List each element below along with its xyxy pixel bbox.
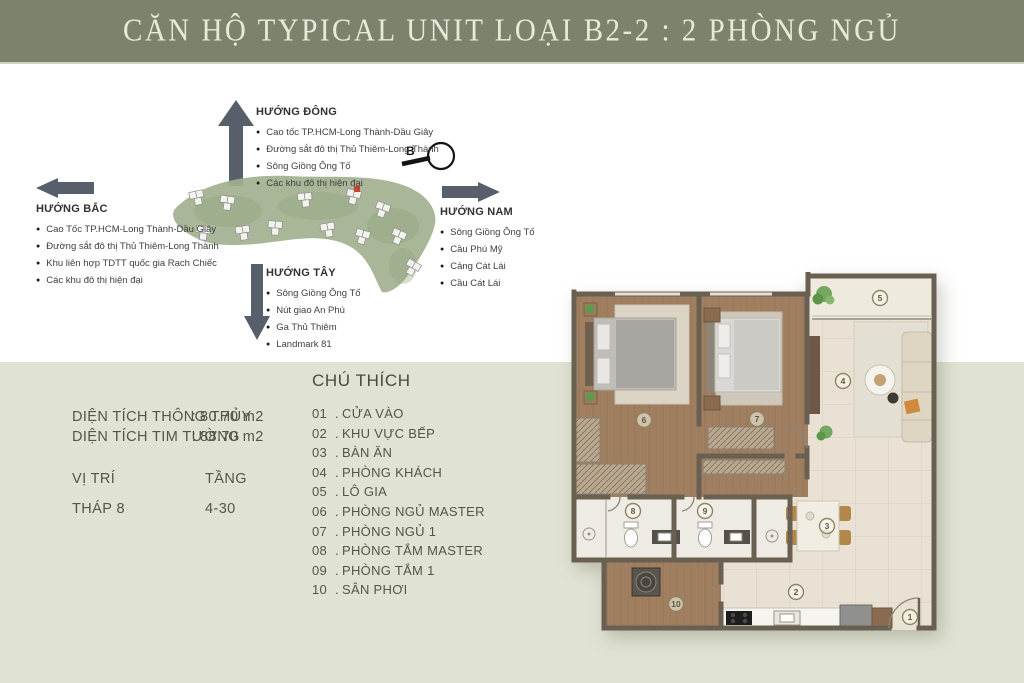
net-area-row: DIỆN TÍCH THÔNG THỦY:80.70 m2: [72, 409, 264, 425]
direction-east-block: HƯỚNG ĐÔNG ●Cao tốc TP.HCM-Long Thành-Dầ…: [256, 106, 439, 193]
bullet-icon: ●: [36, 260, 40, 267]
svg-text:7: 7: [755, 414, 760, 424]
bullet-icon: ●: [266, 307, 270, 314]
svg-text:5: 5: [878, 293, 883, 303]
position-value: THÁP 8: [72, 501, 125, 517]
refrigerator: [840, 605, 872, 628]
floor-plan: 1 2 3 4 5 6 7 8 9 10: [558, 272, 958, 647]
marker-bathroom1: 9: [698, 504, 713, 519]
hall-cabinet: [703, 460, 785, 474]
list-item: ●Ga Thủ Thiêm: [266, 320, 361, 337]
bathroom-floor: [572, 497, 790, 560]
bedroom1-wardrobe: [708, 427, 774, 449]
kitchen-counter: [721, 608, 840, 628]
svg-text:1: 1: [908, 612, 913, 622]
bullet-icon: ●: [266, 290, 270, 297]
legend-item: 04.PHÒNG KHÁCH: [312, 463, 485, 483]
bullet-icon: ●: [440, 263, 444, 270]
list-item: ●Đường sắt đô thị Thủ Thiêm-Long Thành: [256, 142, 439, 159]
direction-west-block: HƯỚNG TÂY ●Sông Giồng Ông Tố ●Nút giao A…: [266, 267, 361, 354]
floor-label: TẦNG: [205, 471, 247, 487]
legend-item: 08.PHÒNG TẮM MASTER: [312, 541, 485, 561]
bullet-icon: ●: [440, 246, 444, 253]
legend-item: 03.BÀN ĂN: [312, 443, 485, 463]
svg-text:3: 3: [825, 521, 830, 531]
list-item: ●Nút giao An Phú: [266, 303, 361, 320]
legend-item: 09.PHÒNG TẮM 1: [312, 561, 485, 581]
legend-item: 10.SÂN PHƠI: [312, 580, 485, 600]
bullet-icon: ●: [256, 129, 260, 136]
marker-kitchen: 2: [789, 585, 804, 600]
tv-console: [808, 336, 820, 414]
marker-bedroom1: 7: [750, 412, 765, 427]
direction-south-block: HƯỚNG NAM ●Sông Giồng Ông Tố ●Cầu Phú Mỹ…: [440, 206, 535, 293]
gross-area-row: DIỆN TÍCH TIM TƯỜNG:88.70 m2: [72, 429, 264, 445]
legend-item: 01.CỬA VÀO: [312, 404, 485, 424]
legend-title: CHÚ THÍCH: [312, 371, 485, 391]
gross-area-value: 88.70 m2: [200, 429, 264, 445]
legend-item: 07.PHÒNG NGỦ 1: [312, 522, 485, 542]
direction-south-title: HƯỚNG NAM: [440, 206, 535, 218]
east-arrow-icon: [442, 182, 500, 202]
list-item: ●Sông Giồng Ông Tố: [256, 159, 439, 176]
list-item: ●Cầu Phú Mỹ: [440, 242, 535, 259]
floor-value: 4-30: [205, 501, 236, 517]
washing-machine: [632, 568, 660, 596]
legend-item: 05.LÔ GIA: [312, 482, 485, 502]
list-item: ●Sông Giồng Ông Tố: [440, 225, 535, 242]
direction-east-title: HƯỚNG ĐÔNG: [256, 106, 439, 118]
gross-area-label: DIỆN TÍCH TIM TƯỜNG: [72, 429, 188, 445]
position-label: VỊ TRÍ: [72, 471, 115, 487]
list-item: ●Cao Tốc TP.HCM-Long Thành-Dầu Giây: [36, 222, 219, 239]
list-item: ●Các khu đô thị hiện đại: [256, 176, 439, 193]
bullet-icon: ●: [266, 324, 270, 331]
west-arrow-icon: [36, 178, 94, 198]
marker-dining: 3: [820, 519, 835, 534]
list-item: ●Cao tốc TP.HCM-Long Thành-Dầu Giây: [256, 125, 439, 142]
direction-west-title: HƯỚNG TÂY: [266, 267, 361, 279]
svg-text:9: 9: [703, 506, 708, 516]
laundry-floor: [604, 560, 722, 630]
master-closet: [574, 418, 600, 462]
legend-item: 02.KHU VỰC BẾP: [312, 424, 485, 444]
svg-text:10: 10: [671, 599, 681, 609]
marker-master-bedroom: 6: [637, 413, 652, 428]
list-item: ●Sông Giồng Ông Tố: [266, 286, 361, 303]
list-item: ●Landmark 81: [266, 337, 361, 354]
list-item: ●Cảng Cát Lái: [440, 259, 535, 276]
brochure-page: CĂN HỘ TYPICAL UNIT LOẠI B2-2 : 2 PHÒNG …: [0, 0, 1024, 683]
bullet-icon: ●: [256, 163, 260, 170]
bullet-icon: ●: [440, 280, 444, 287]
master-bed: [584, 303, 676, 404]
direction-north-block: HƯỚNG BẮC ●Cao Tốc TP.HCM-Long Thành-Dầu…: [36, 203, 219, 290]
bullet-icon: ●: [36, 243, 40, 250]
legend-item: 06.PHÒNG NGỦ MASTER: [312, 502, 485, 522]
marker-laundry: 10: [669, 597, 684, 612]
marker-living: 4: [836, 374, 851, 389]
legend: CHÚ THÍCH 01.CỬA VÀO 02.KHU VỰC BẾP 03.B…: [312, 371, 485, 600]
svg-text:2: 2: [794, 587, 799, 597]
bullet-icon: ●: [440, 229, 444, 236]
marker-bathroom-master: 8: [626, 504, 641, 519]
net-area-value: 80.70 m2: [200, 409, 264, 425]
net-area-label: DIỆN TÍCH THÔNG THỦY: [72, 409, 188, 425]
page-title: CĂN HỘ TYPICAL UNIT LOẠI B2-2 : 2 PHÒNG …: [123, 13, 901, 49]
marker-entrance: 1: [903, 610, 918, 625]
bullet-icon: ●: [36, 226, 40, 233]
bullet-icon: ●: [256, 180, 260, 187]
bullet-icon: ●: [256, 146, 260, 153]
master-closet-2: [576, 464, 646, 494]
list-item: ●Khu liên hợp TDTT quốc gia Rạch Chiếc: [36, 256, 219, 273]
list-item: ●Đường sắt đô thị Thủ Thiêm-Long Thành: [36, 239, 219, 256]
marker-balcony: 5: [873, 291, 888, 306]
svg-text:8: 8: [631, 506, 636, 516]
title-bar: CĂN HỘ TYPICAL UNIT LOẠI B2-2 : 2 PHÒNG …: [0, 0, 1024, 64]
bullet-icon: ●: [266, 341, 270, 348]
svg-text:4: 4: [841, 376, 846, 386]
sofa: [902, 332, 932, 442]
list-item: ●Cầu Cát Lái: [440, 276, 535, 293]
direction-north-title: HƯỚNG BẮC: [36, 203, 219, 215]
list-item: ●Các khu đô thị hiện đại: [36, 273, 219, 290]
svg-text:6: 6: [642, 415, 647, 425]
side-table: [888, 393, 899, 404]
bullet-icon: ●: [36, 277, 40, 284]
